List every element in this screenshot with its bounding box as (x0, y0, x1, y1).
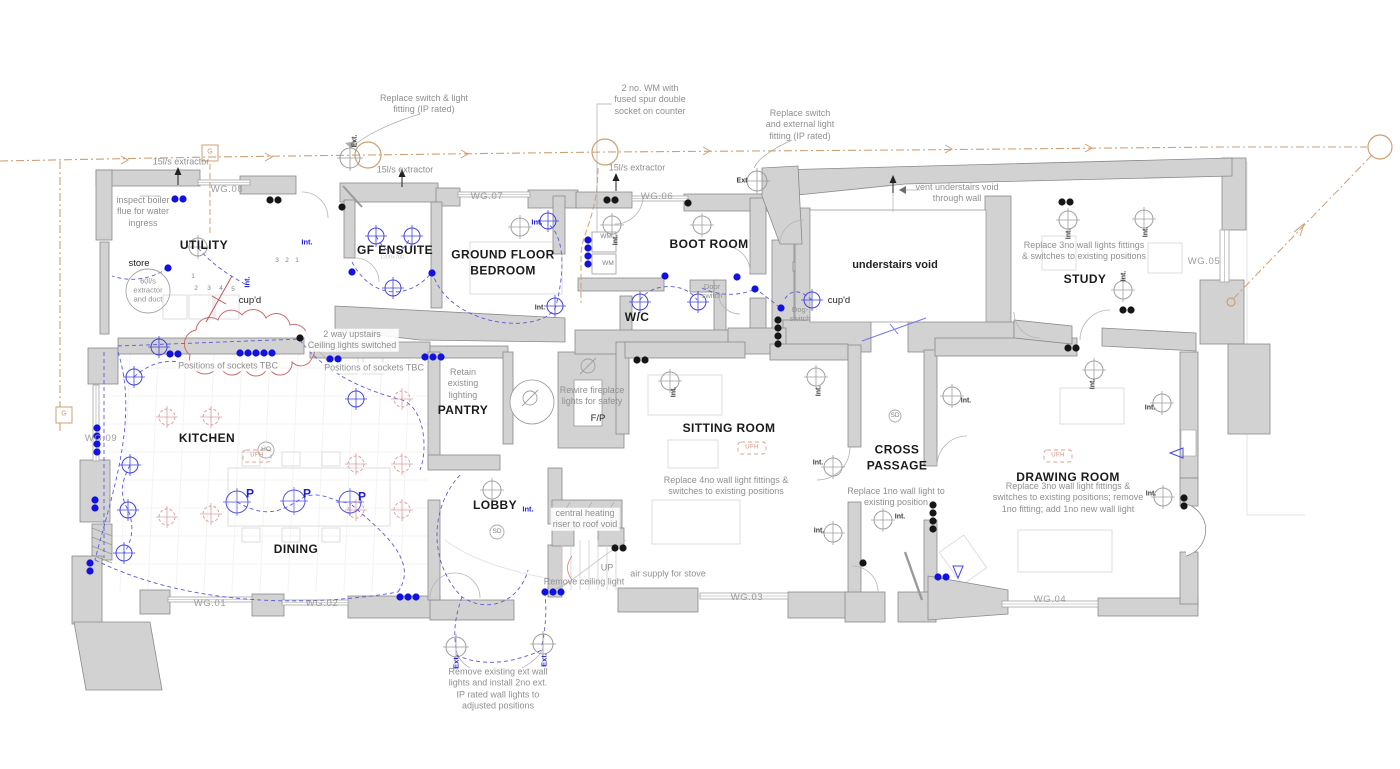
intermediate-switch-label: Int. (242, 276, 251, 287)
socket-number: 3 (275, 257, 279, 265)
pendant-label: P (358, 490, 366, 505)
washing-machine-label: WM (602, 260, 614, 268)
external-light-label: Ext. (352, 135, 361, 148)
annotation-drawing-wall-lights: Replace 3no wall light fittings & switch… (993, 481, 1144, 515)
annotation-extractor-ensuite: 15l/s extractor (377, 164, 434, 175)
room-label-dining: DINING (274, 542, 318, 558)
annotation-sitting-wall-lights: Replace 4no wall light fittings & switch… (664, 475, 789, 498)
intermediate-switch-label: Int. (671, 387, 680, 398)
annotation-inspect-boiler: inspect boiler flue for water ingress (116, 195, 169, 229)
intermediate-switch-label: Int. (1066, 229, 1075, 240)
socket-number: 3 (207, 285, 211, 293)
window-tag-wg04: WG.04 (1034, 594, 1067, 606)
annotation-central-heating-riser: central heating riser to roof void (551, 508, 620, 531)
annotation-two-way-upstairs: 2 way upstairs Ceiling lights switched (306, 329, 399, 352)
intermediate-switch-label: Int. (531, 217, 542, 226)
window-tag-wg07: WG.07 (471, 191, 504, 203)
room-label-boot-room: BOOT ROOM (670, 237, 749, 253)
gas-marker-label: G (61, 411, 66, 420)
annotation-remove-ceiling-light: Remove ceiling light (544, 576, 625, 587)
heat-outlet-label: HO (261, 446, 271, 454)
room-label-pantry: PANTRY (438, 403, 488, 419)
stairs-up-label: UP (601, 562, 614, 573)
annotation-vent-understairs: vent understairs void through wall (915, 182, 998, 205)
annotation-sockets-tbc-2: Positions of sockets TBC (322, 362, 426, 373)
annotation-extractor-bootroom: 15l/s extractor (609, 162, 666, 173)
window-tag-wg01: WG.01 (194, 598, 227, 610)
annotation-replace-switch-light: Replace switch & light fitting (IP rated… (380, 93, 468, 116)
area-label-fireplace: F/P (591, 413, 606, 425)
intermediate-switch-label: Int. (613, 235, 622, 246)
area-label-cupboard-hall: cup'd (828, 295, 850, 307)
underfloor-heating-label: UFH (250, 452, 264, 460)
room-label-lobby: LOBBY (473, 498, 517, 514)
intermediate-switch-label: Int. (895, 514, 906, 523)
socket-number: 4 (219, 285, 223, 293)
socket-number: 1 (295, 257, 299, 265)
socket-number: 1 (191, 273, 195, 281)
area-label-understairs-void: understairs void (852, 259, 938, 273)
annotation-extractor-utility: 15l/s extractor (153, 156, 210, 167)
smoke-detector-label: SD (492, 528, 501, 536)
annotation-retain-lighting: Retain existing lighting (446, 367, 481, 401)
intermediate-switch-label: Int. (961, 398, 972, 407)
annotation-study-wall-lights: Replace 3no wall lights fittings & switc… (1022, 240, 1146, 263)
pendant-label: P (246, 487, 254, 502)
pendant-label: P (303, 487, 311, 502)
socket-number: 2 (285, 257, 289, 265)
external-light-label: Ext. (539, 653, 548, 667)
intermediate-switch-label: Int. (522, 504, 533, 513)
intermediate-switch-label: Int. (1146, 491, 1157, 500)
smoke-detector-label: SD (890, 412, 899, 420)
room-label-study: STUDY (1064, 272, 1107, 288)
annotation-dog-switch: Dog- switch (790, 305, 811, 323)
external-light-label: Ext (737, 178, 748, 187)
underfloor-heating-label: UFH (1051, 452, 1065, 460)
dimension-label: 1200x700 (380, 255, 404, 262)
window-tag-wg09: WG.09 (85, 433, 118, 445)
intermediate-switch-label: Int. (1090, 379, 1099, 390)
intermediate-switch-label: Int. (1145, 405, 1156, 414)
intermediate-switch-label: Int. (1143, 227, 1152, 238)
washing-machine-label: WM (600, 233, 612, 241)
window-tag-wg06: WG.06 (641, 191, 674, 203)
annotation-rewire-fireplace: Rewire fireplace lights for safety (560, 385, 625, 408)
room-label-kitchen: KITCHEN (179, 431, 235, 447)
room-label-gf-ensuite: GF ENSUITE (357, 243, 433, 259)
labels-layer: UTILITYGF ENSUITEGROUND FLOOR BEDROOMBOO… (0, 0, 1400, 769)
annotation-remove-ext-wall-lights: Remove existing ext wall lights and inst… (448, 667, 547, 712)
floor-plan: UTILITYGF ENSUITEGROUND FLOOR BEDROOMBOO… (0, 0, 1400, 769)
area-label-cupboard-utility: cup'd (239, 295, 261, 307)
annotation-cross-wall-light: Replace 1no wall light to existing posit… (847, 486, 945, 509)
intermediate-switch-label: Int. (813, 460, 824, 469)
window-tag-wg02: WG.02 (306, 598, 339, 610)
window-tag-wg05: WG.05 (1188, 256, 1221, 268)
window-tag-wg03: WG.03 (731, 592, 764, 604)
annotation-sockets-tbc-1: Positions of sockets TBC (176, 360, 280, 371)
annotation-door-switch: Door switch (702, 282, 723, 300)
room-label-drawing-room: DRAWING ROOM (1016, 470, 1119, 486)
area-label-store: store (128, 258, 149, 270)
underfloor-heating-label: UFH (745, 444, 759, 452)
socket-number: 5 (231, 286, 235, 294)
intermediate-switch-label: Int. (301, 237, 312, 246)
socket-number: 2 (194, 285, 198, 293)
room-label-cross-passage: CROSS PASSAGE (867, 442, 928, 473)
annotation-air-supply: air supply for stove (630, 568, 706, 579)
intermediate-switch-label: Int. (535, 305, 546, 314)
annotation-wm-fused-spur: 2 no. WM with fused spur double socket o… (614, 83, 686, 117)
annotation-replace-external-light: Replace switch and external light fittin… (766, 108, 835, 142)
room-label-utility: UTILITY (180, 238, 228, 254)
external-light-label: Ext. (451, 655, 460, 669)
annotation-60ls-extractor: 60l/s extractor and duct (133, 277, 162, 304)
room-label-sitting-room: SITTING ROOM (683, 421, 776, 437)
intermediate-switch-label: Int. (1121, 271, 1130, 282)
intermediate-switch-label: Int. (814, 528, 825, 537)
intermediate-switch-label: Int. (816, 386, 825, 397)
gas-marker-label: G (207, 149, 212, 158)
room-label-ground-floor-bedroom: GROUND FLOOR BEDROOM (451, 247, 554, 278)
window-tag-wg08: WG.08 (211, 184, 244, 196)
room-label-wc: W/C (625, 310, 650, 326)
